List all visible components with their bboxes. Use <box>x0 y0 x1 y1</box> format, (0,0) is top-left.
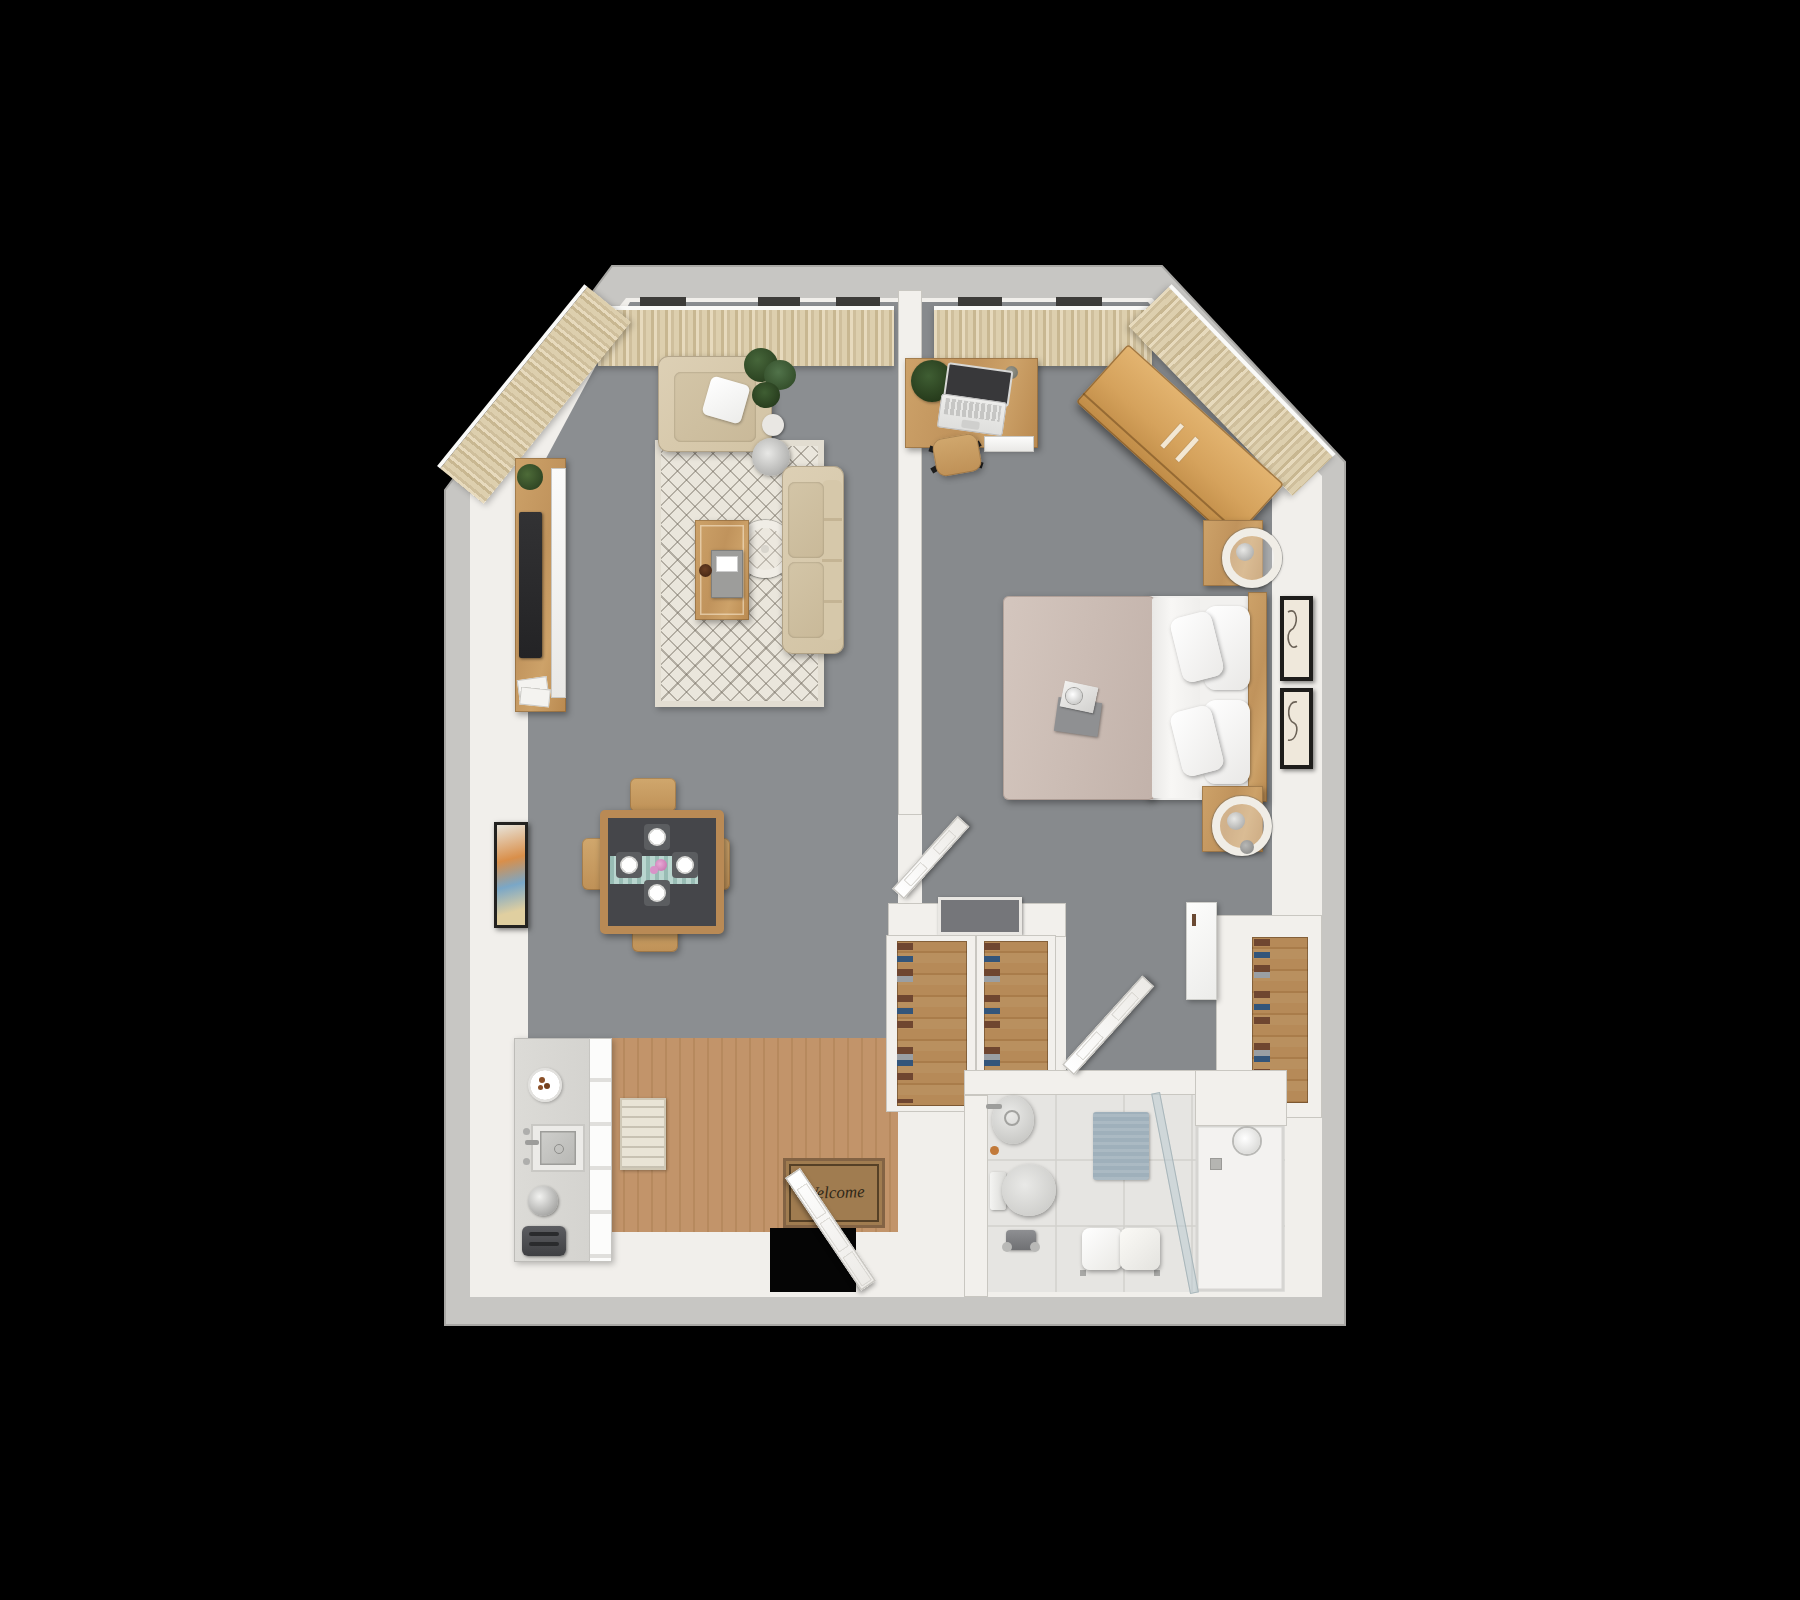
tp-roll <box>1030 1242 1040 1252</box>
plate <box>648 884 666 902</box>
plant-pot <box>762 414 784 436</box>
sofa-cushion <box>788 482 824 558</box>
mug <box>1066 688 1082 704</box>
kitchen-counter <box>514 1038 612 1262</box>
faucet-knob <box>523 1158 530 1165</box>
cabinet-handle <box>1192 914 1196 926</box>
laptop-keys <box>944 398 1002 422</box>
shower-head <box>1234 1128 1260 1154</box>
snack <box>539 1077 545 1083</box>
toaster-slot <box>529 1242 559 1246</box>
shoe-closet-a-shoes <box>897 943 913 1103</box>
dining-chair-top <box>630 778 676 812</box>
desk-chair <box>926 436 986 482</box>
flower <box>650 866 658 874</box>
cabinet-fronts <box>589 1038 612 1262</box>
plate <box>620 856 638 874</box>
snack <box>544 1083 550 1089</box>
shoe-closet-b-shoes <box>984 943 1000 1069</box>
tray-card <box>716 556 738 572</box>
lamp-ball <box>1240 840 1254 854</box>
bathroom-top-wall <box>964 1070 1197 1095</box>
headboard <box>1248 592 1267 802</box>
vanity-sink <box>992 1096 1034 1144</box>
shower-drain <box>1210 1158 1222 1170</box>
glass-top-counter <box>938 897 1022 935</box>
toilet-paper-holder <box>1006 1230 1036 1250</box>
towel-bench <box>1080 1226 1162 1276</box>
desk-drawer <box>984 436 1034 452</box>
serving-tray <box>711 550 743 598</box>
sofa <box>782 466 844 654</box>
lamp-body <box>1236 543 1254 561</box>
toaster-slot <box>529 1232 559 1236</box>
snack <box>538 1085 543 1090</box>
wall-cabinet <box>1186 902 1217 1000</box>
television <box>519 512 542 658</box>
magazine <box>519 686 551 707</box>
floor-plan: Welcome <box>0 0 1800 1600</box>
tv-console <box>515 458 566 712</box>
sink-drain <box>554 1144 564 1154</box>
wardrobe-handle <box>1175 437 1199 463</box>
plate <box>648 828 666 846</box>
coaster <box>699 564 712 577</box>
soap <box>990 1146 999 1155</box>
wall-frame-top <box>1280 596 1313 681</box>
sofa-cushion <box>788 562 824 638</box>
toilet-lid <box>1002 1164 1056 1216</box>
towel <box>1082 1228 1122 1270</box>
bench-leg <box>1154 1270 1160 1276</box>
sofa-backrest <box>822 480 842 640</box>
chair-seat <box>931 432 983 477</box>
towel <box>1120 1228 1160 1270</box>
sphere-lamp-top <box>1222 528 1282 588</box>
bathroom-left-wall <box>964 1095 988 1297</box>
coffee-table <box>695 520 749 620</box>
shoe-closet-a <box>886 935 976 1112</box>
toilet <box>990 1164 1058 1218</box>
dining-table <box>600 810 724 934</box>
plate <box>676 856 694 874</box>
toaster <box>522 1226 566 1256</box>
console-doors <box>551 468 566 698</box>
floor-plant-leaves <box>752 382 780 408</box>
lamp-body <box>1227 812 1245 830</box>
bath-mat <box>1093 1112 1149 1180</box>
sink-basin <box>540 1131 576 1165</box>
wardrobe-handle <box>1160 423 1184 449</box>
arc-lamp-bulb <box>761 545 769 553</box>
faucet <box>525 1140 539 1145</box>
kitchen-runner-rug <box>620 1098 666 1170</box>
wall-art <box>494 822 528 928</box>
shoe-closet-b <box>976 935 1056 1078</box>
tp-roll <box>1002 1242 1012 1252</box>
snack-plate <box>528 1068 562 1102</box>
kitchen-sink <box>531 1124 585 1172</box>
laptop-trackpad <box>961 420 980 430</box>
bench-leg <box>1080 1270 1086 1276</box>
laptop <box>937 362 1012 439</box>
sink-drain <box>1004 1110 1020 1126</box>
console-plant <box>517 464 543 490</box>
faucet-knob <box>523 1128 530 1135</box>
shower-top-wall <box>1195 1070 1287 1126</box>
kettle <box>528 1186 558 1216</box>
bath-faucet <box>986 1104 1002 1109</box>
wall-frame-bottom <box>1280 688 1313 769</box>
